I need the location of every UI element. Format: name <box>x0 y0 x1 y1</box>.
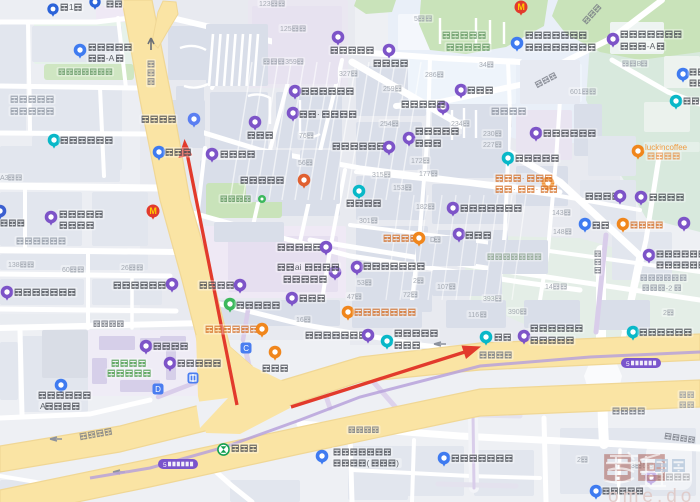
svg-text:138: 138 <box>8 262 20 269</box>
svg-text:327: 327 <box>339 71 351 78</box>
svg-text:ai: ai <box>295 262 302 272</box>
svg-text:-A: -A <box>106 53 115 63</box>
svg-text:A3: A3 <box>0 175 9 182</box>
svg-text:2: 2 <box>577 457 581 464</box>
svg-text:227: 227 <box>483 142 495 149</box>
svg-text:143: 143 <box>552 210 564 217</box>
svg-text:116: 116 <box>468 312 479 319</box>
svg-text:60: 60 <box>62 267 70 274</box>
svg-text:182: 182 <box>416 204 428 211</box>
svg-text:): ) <box>396 459 399 468</box>
svg-text:301: 301 <box>359 218 371 225</box>
svg-text:·: · <box>317 109 320 119</box>
svg-text:315: 315 <box>372 172 384 179</box>
svg-text:5: 5 <box>414 16 418 23</box>
svg-text:B: B <box>637 61 642 68</box>
svg-text:(: ( <box>367 459 370 468</box>
svg-text:172: 172 <box>411 158 423 165</box>
svg-text:230: 230 <box>483 131 495 138</box>
svg-text:125: 125 <box>280 26 292 33</box>
svg-text:-2: -2 <box>666 283 673 292</box>
svg-text:601: 601 <box>570 89 582 96</box>
svg-text:53: 53 <box>357 280 365 287</box>
svg-text:·: · <box>513 184 516 194</box>
svg-text:76: 76 <box>299 133 307 140</box>
svg-text:359: 359 <box>285 59 297 66</box>
svg-text:259: 259 <box>383 86 395 93</box>
svg-text:1: 1 <box>69 2 74 12</box>
svg-text:16: 16 <box>296 317 304 324</box>
svg-text:ome.do: ome.do <box>608 486 695 502</box>
svg-text:D: D <box>430 237 435 244</box>
svg-text:107: 107 <box>437 284 449 291</box>
svg-text:·: · <box>522 173 525 183</box>
svg-text:56: 56 <box>298 160 306 167</box>
svg-text:177: 177 <box>419 171 431 178</box>
svg-text:72: 72 <box>403 292 411 299</box>
svg-text:luckincoffee: luckincoffee <box>645 143 688 152</box>
svg-text:393: 393 <box>483 296 495 303</box>
svg-text:-A: -A <box>647 41 656 51</box>
svg-text:2: 2 <box>413 278 417 285</box>
svg-text:148: 148 <box>553 229 565 236</box>
svg-text:C: C <box>243 344 249 353</box>
svg-text:153: 153 <box>393 185 405 192</box>
svg-text:14: 14 <box>545 284 553 291</box>
svg-text:26: 26 <box>121 265 129 272</box>
svg-text:34: 34 <box>479 62 487 69</box>
svg-text:286: 286 <box>425 72 437 79</box>
svg-text:A: A <box>40 401 46 411</box>
svg-text:47: 47 <box>347 294 355 301</box>
svg-text:123: 123 <box>259 1 271 8</box>
svg-text:5: 5 <box>626 361 630 368</box>
svg-text:5: 5 <box>163 462 167 469</box>
svg-text:254: 254 <box>380 121 392 128</box>
svg-text:M: M <box>149 206 157 216</box>
svg-text:2: 2 <box>663 310 667 317</box>
svg-text:·: · <box>536 184 539 194</box>
svg-text:M: M <box>517 2 525 12</box>
svg-text:390: 390 <box>508 309 520 316</box>
svg-text:D: D <box>155 385 161 394</box>
